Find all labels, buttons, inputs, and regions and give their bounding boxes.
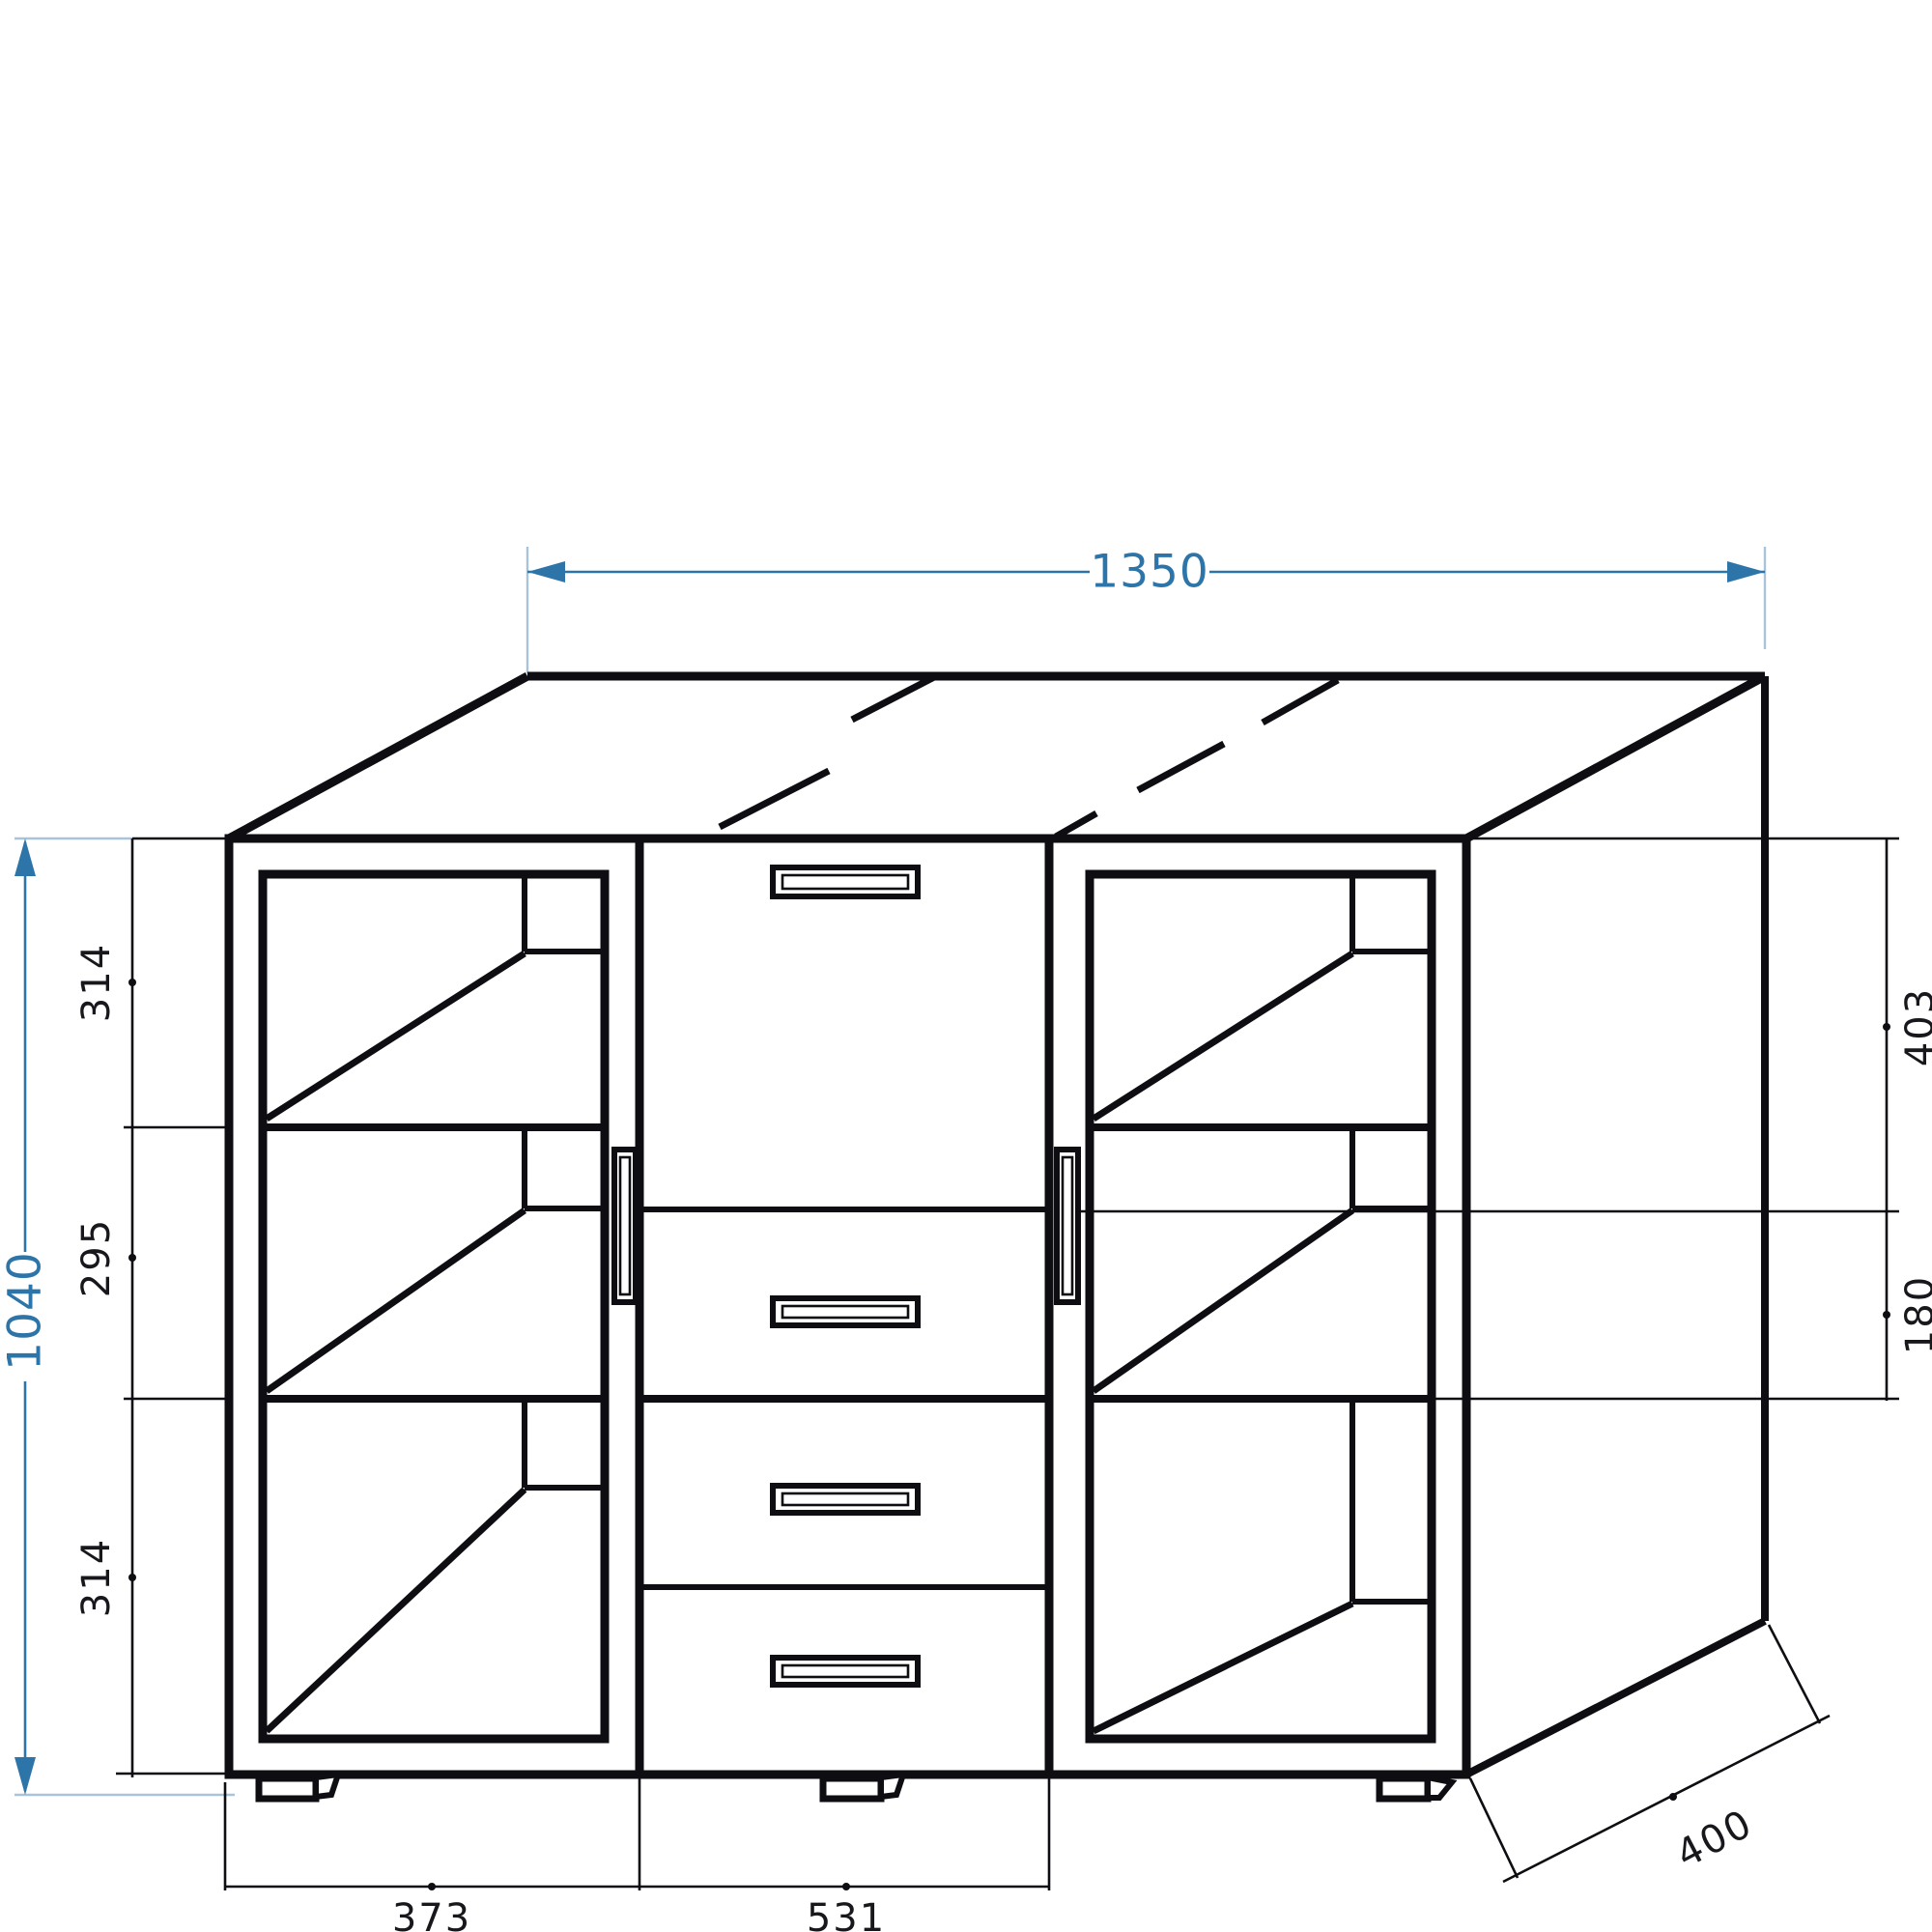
dimension-bottom-widths: 373 531 (225, 1778, 1049, 1932)
drawer-handle-3 (773, 1658, 918, 1685)
dim-label-center-width: 531 (807, 1896, 886, 1932)
dim-label-overall-height: 1040 (0, 1251, 52, 1371)
dimension-left-compartments: 314 295 314 (74, 838, 225, 1777)
side-bottom-edge (1466, 1621, 1765, 1775)
tick-dot (128, 1254, 136, 1262)
top-left-slant-edge (229, 676, 527, 838)
dimension-line (1503, 1716, 1830, 1882)
tick-dot (428, 1883, 436, 1890)
extension-line (1769, 1625, 1820, 1723)
dimension-center-sections: 403 180 (1055, 838, 1932, 1401)
dim-label-flap-height: 403 (1898, 987, 1932, 1066)
top-surface-hatch-marks (720, 677, 1338, 837)
tick-dot (128, 979, 136, 986)
cabinet-right-side-face (1466, 676, 1765, 1775)
dim-label-drawer-height: 180 (1898, 1275, 1932, 1354)
extension-line (1470, 1778, 1518, 1878)
center-drawer-stack (639, 867, 1049, 1685)
leg-left (259, 1775, 338, 1799)
dim-label-left-top: 314 (74, 943, 119, 1022)
left-door-handle (614, 1150, 636, 1302)
drawer-handle-1 (773, 1298, 918, 1325)
left-glass-door (263, 874, 636, 1739)
dim-label-left-width: 373 (392, 1896, 471, 1932)
dimension-overall-width: 1350 (527, 546, 1765, 674)
cabinet-top-face (229, 676, 1765, 838)
flap-handle (773, 867, 918, 896)
tick-dot (842, 1883, 850, 1890)
dim-label-left-middle: 295 (74, 1218, 119, 1297)
arrowhead-left-icon (527, 561, 565, 582)
dim-label-overall-depth: 400 (1669, 1802, 1760, 1878)
top-right-slant-edge (1466, 676, 1765, 838)
arrowhead-right-icon (1727, 561, 1765, 582)
dim-label-left-bottom: 314 (74, 1538, 119, 1617)
tick-dot (128, 1574, 136, 1581)
tick-dot (1669, 1793, 1677, 1801)
tick-dot (1883, 1023, 1890, 1031)
dim-label-overall-width: 1350 (1090, 546, 1209, 599)
arrowhead-up-icon (14, 838, 36, 876)
leg-right (1379, 1777, 1452, 1799)
right-door-frame (1090, 874, 1432, 1739)
leg-center (823, 1775, 903, 1799)
tick-dot (1883, 1311, 1890, 1319)
left-door-frame (263, 874, 605, 1739)
technical-drawing-canvas: 1350 1040 314 295 314 403 180 (0, 0, 1932, 1932)
right-glass-door (1057, 874, 1432, 1739)
right-door-handle (1057, 1150, 1078, 1302)
drawer-handle-2 (773, 1486, 918, 1513)
right-door-interior-perspective (1094, 878, 1432, 1731)
arrowhead-down-icon (14, 1757, 36, 1795)
dimension-overall-depth: 400 (1470, 1625, 1830, 1882)
left-door-interior-perspective (267, 878, 605, 1731)
